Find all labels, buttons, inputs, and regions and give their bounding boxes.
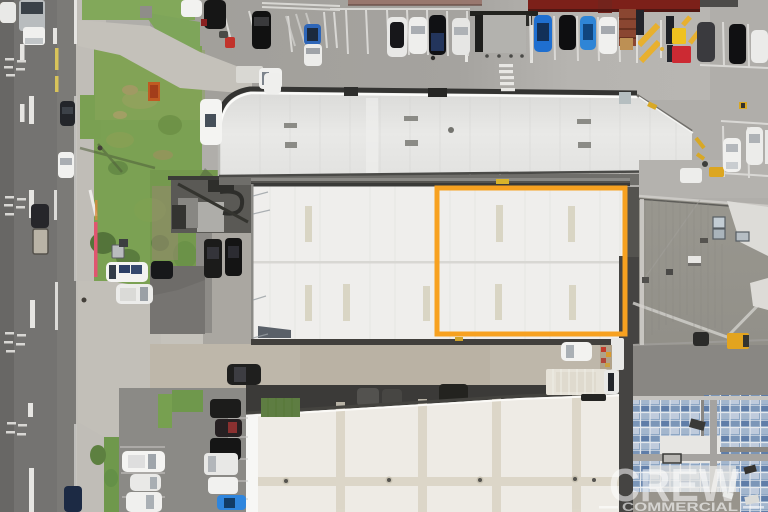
svg-text:COMMERCIAL: COMMERCIAL [622,500,738,512]
